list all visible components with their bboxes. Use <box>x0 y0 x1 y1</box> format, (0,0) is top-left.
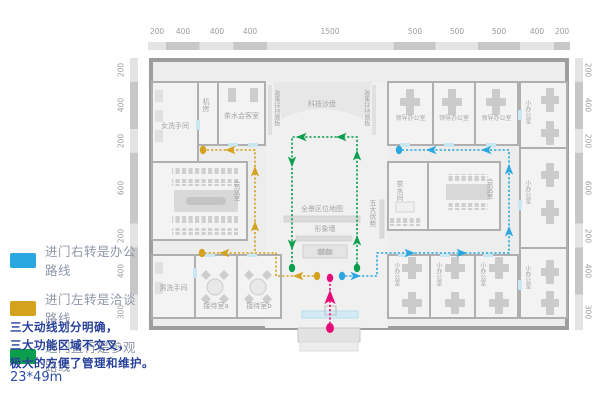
chair-row <box>172 228 238 235</box>
room-label-small-office: 小办公室 <box>523 265 530 289</box>
area-map-board <box>284 216 360 222</box>
small-conference-table <box>446 184 490 200</box>
chair-row <box>172 167 238 174</box>
label-front-desk: 前台 <box>308 248 342 256</box>
label-policy-board-left: 政策扶持展板 <box>272 90 279 126</box>
label-image-wall: 形象墙 <box>302 225 348 233</box>
dim-label: 600 <box>117 181 126 195</box>
label-area-map: 全景区位地图 <box>292 205 352 213</box>
entrance-step <box>300 342 358 351</box>
wc-fixture <box>155 110 163 122</box>
room-label-small-office: 小办公室 <box>434 262 441 286</box>
dim-label: 400 <box>584 264 593 278</box>
legend-label: 进门右转是办公路线 <box>45 241 145 279</box>
dim-label: 400 <box>210 27 224 36</box>
building-size-note: 23*49m <box>10 370 62 385</box>
dim-label: 500 <box>408 27 422 36</box>
round-table <box>207 279 223 295</box>
dim-label: 200 <box>150 27 164 36</box>
dim-label: 200 <box>117 63 126 77</box>
dim-label: 200 <box>584 229 593 243</box>
tea-table <box>396 202 414 212</box>
room-label-conference-small: 会议室 <box>486 178 494 199</box>
chair-row <box>448 174 488 181</box>
dim-label: 500 <box>492 27 506 36</box>
room-label-small-office: 小办公室 <box>523 180 530 204</box>
right-scale-bar <box>575 58 583 330</box>
talk-route-color-swatch <box>10 301 36 316</box>
dim-label: 400 <box>243 27 257 36</box>
conference-table-center <box>186 197 226 205</box>
chair-row <box>448 203 488 210</box>
dim-label: 200 <box>584 134 593 148</box>
wc-fixture <box>155 130 163 142</box>
description-line: 三大功能区域不交叉， <box>10 336 160 354</box>
room-label-reception-a: 接待室a <box>195 302 237 310</box>
legend-row-office: 进门右转是办公路线 <box>10 241 145 279</box>
room-label-conference-big: 会议室 <box>233 180 241 201</box>
wc-fixture <box>155 262 163 274</box>
room-label-small-office: 小办公室 <box>523 100 530 124</box>
label-five-advantages: 五大优势 <box>369 199 377 227</box>
top-scale-bar <box>148 42 570 50</box>
office-route-color-swatch <box>10 253 36 268</box>
wc-fixture <box>155 90 163 102</box>
description-line: 三大动线划分明确， <box>10 318 160 336</box>
chair-row <box>172 216 238 223</box>
floor-plan-page: 200 400 400 400 1500 500 500 500 400 200… <box>0 0 600 400</box>
chair <box>250 88 258 102</box>
room-label-reception-b: 接待室b <box>237 302 281 310</box>
image-wall-board <box>296 236 352 241</box>
five-advantages-board <box>380 200 384 238</box>
dim-label: 200 <box>584 63 593 77</box>
room-label-tea-room: 茶水间 <box>396 180 404 201</box>
dim-label: 600 <box>584 181 593 195</box>
room-label-machine-room: 机房 <box>202 98 210 112</box>
label-policy-board-right: 政策扶持展板 <box>362 90 369 126</box>
dim-label: 200 <box>117 134 126 148</box>
round-table <box>250 279 266 295</box>
room-label-men-wc: 男洗手间 <box>152 284 195 292</box>
policy-board-right <box>372 85 376 135</box>
room-label-small-office: 小办公室 <box>392 262 399 286</box>
dim-label: 400 <box>584 98 593 112</box>
dim-label: 200 <box>555 27 569 36</box>
dim-label: 400 <box>117 98 126 112</box>
tea-counter <box>390 218 422 226</box>
dim-label: 500 <box>450 27 464 36</box>
room-label-small-office: 小办公室 <box>478 262 485 286</box>
dim-label: 300 <box>584 305 593 319</box>
room-label-leader-2: 领导办公室 <box>433 116 475 123</box>
room-machine <box>198 82 218 145</box>
room-label-tech-sandbox: 科技沙盘 <box>292 100 352 108</box>
room-label-tea-reception: 茶水会客室 <box>218 112 265 120</box>
room-label-leader-1: 领导办公室 <box>388 116 433 123</box>
description: 三大动线划分明确， 三大功能区域不交叉， 极大的方便了管理和维护。 <box>10 318 160 372</box>
chair-row <box>172 179 238 186</box>
room-label-women-wc: 女洗手间 <box>152 122 198 130</box>
chair <box>228 88 236 102</box>
room-label-leader-3: 领导办公室 <box>475 116 518 123</box>
dim-label: 400 <box>176 27 190 36</box>
dim-label: 400 <box>530 27 544 36</box>
dim-label: 1500 <box>320 27 339 36</box>
